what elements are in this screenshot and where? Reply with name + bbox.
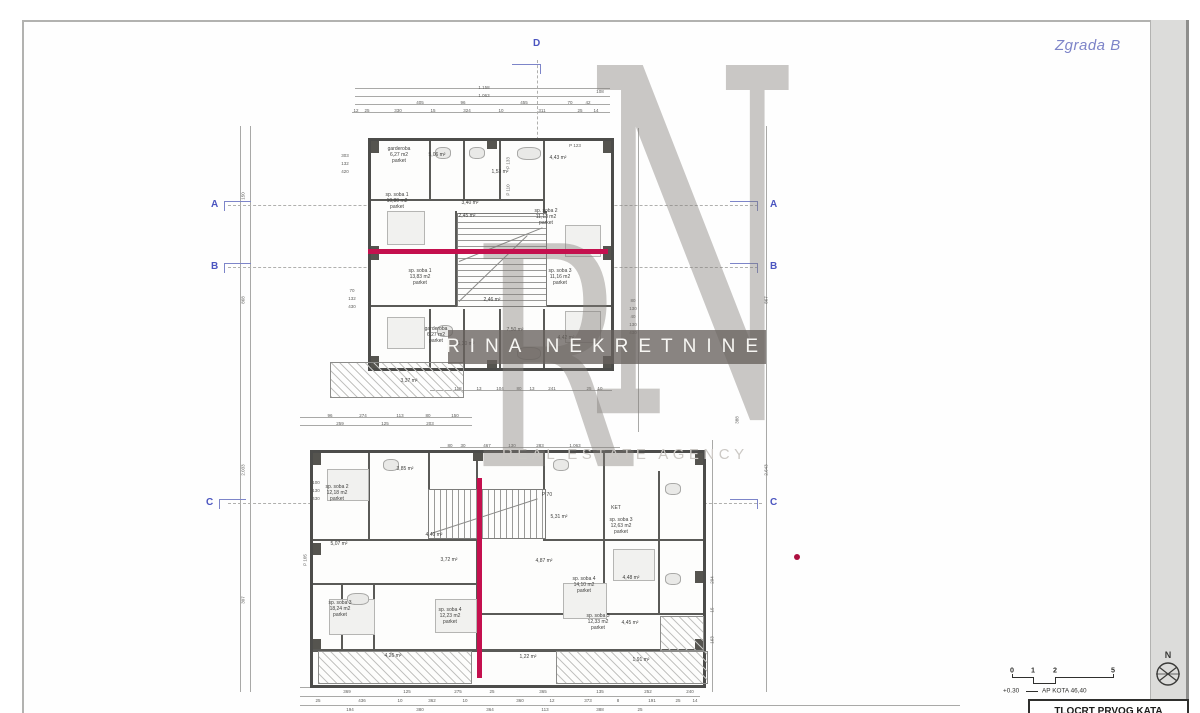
wc-fixture xyxy=(665,573,681,585)
terrace-hatch xyxy=(330,362,464,398)
room-label: 4,26 m² xyxy=(385,653,402,659)
dimension-label: 430 xyxy=(312,496,320,501)
title-block: TLOCRT PRVOG KATA xyxy=(1028,699,1189,713)
scale-bar xyxy=(1055,677,1114,678)
dimension-label: 10 xyxy=(462,698,467,703)
section-marker-letter: B xyxy=(770,261,777,272)
scale-tick-label: 0 xyxy=(1010,666,1014,674)
wall-segment xyxy=(313,583,478,585)
dimension-label: 118 xyxy=(454,386,461,391)
scale-bar-tick xyxy=(1055,677,1056,684)
watermark-banner-text: RINA NEKRETNINE xyxy=(446,336,768,358)
bed xyxy=(387,317,425,349)
dim-chain-line xyxy=(300,417,472,418)
dimension-label: 113 xyxy=(396,413,403,418)
wall-pier xyxy=(473,453,483,461)
room-label: 5,31 m² xyxy=(551,514,568,520)
elevation-note: +0.30 xyxy=(1003,687,1019,694)
dimension-label: 1.158 xyxy=(478,85,489,90)
dimension-label: P 110 xyxy=(506,184,511,195)
watermark-subtitle: REAL ESTATE AGENCY xyxy=(502,446,749,463)
dimension-label: 259 xyxy=(336,421,344,426)
room-label: 3,37 m² xyxy=(401,378,418,384)
dimension-label: 132 xyxy=(348,296,356,301)
section-marker-bracket xyxy=(224,263,225,273)
wall-pier xyxy=(313,543,321,555)
room-label: garderoba 6,27 m2 parket xyxy=(425,326,448,344)
dimension-label: 274 xyxy=(359,413,367,418)
dimension-label: 104 xyxy=(496,386,504,391)
room-label: 2,45 m² xyxy=(459,213,476,219)
section-marker-bracket xyxy=(224,263,251,264)
dimension-label: 150 xyxy=(451,413,459,418)
dimension-label: 10 xyxy=(597,386,602,391)
room-label: 1,91 m² xyxy=(633,657,650,663)
dimension-label: 467 xyxy=(483,443,491,448)
sheet-right-edge xyxy=(1186,20,1189,713)
dimension-label: 388 xyxy=(735,416,740,424)
room-label: sp. soba 3 12,33 m2 parket xyxy=(586,613,609,631)
dimension-label: 10 xyxy=(397,698,402,703)
dimension-label: 252 xyxy=(644,689,652,694)
dimension-label: 436 xyxy=(358,698,366,703)
dimension-label: 303 xyxy=(341,153,349,158)
dimension-label: 25 xyxy=(675,698,680,703)
dimension-label: 132 xyxy=(341,161,349,166)
dimension-label: 369 xyxy=(343,689,351,694)
dimension-label: 364 xyxy=(486,707,494,712)
dimension-label: 15 xyxy=(430,108,435,113)
scale-tick-label: 2 xyxy=(1053,666,1057,674)
dimension-label: 430 xyxy=(348,304,356,309)
dimension-label: 150 xyxy=(241,192,246,200)
floor-plan-page: Zgrada B xyxy=(0,0,1200,713)
scale-bar xyxy=(1033,683,1056,684)
dim-chain-line xyxy=(300,696,700,697)
dimension-label: 868 xyxy=(241,296,246,304)
dimension-label: 2.033 xyxy=(241,464,246,475)
section-marker-bracket xyxy=(540,64,541,74)
wall-segment xyxy=(658,471,660,615)
dimension-label: 362 xyxy=(428,698,436,703)
section-marker-letter: C xyxy=(206,497,213,508)
dimension-label: 13 xyxy=(476,386,481,391)
dimension-label: 80 xyxy=(425,413,430,418)
wc-fixture xyxy=(469,147,485,159)
section-line-d xyxy=(537,60,538,145)
dim-chain-line xyxy=(352,112,610,113)
section-marker-bracket xyxy=(219,499,220,509)
wall-segment xyxy=(463,141,465,199)
dimension-label: 130 xyxy=(312,488,320,493)
room-label: 5,07 m² xyxy=(331,541,348,547)
dimension-label: 307 xyxy=(241,596,246,604)
dimension-label: 40 xyxy=(630,314,635,319)
room-label: 4,87 m² xyxy=(536,558,553,564)
dimension-label: 100 xyxy=(312,480,320,485)
dim-chain-line xyxy=(766,126,767,692)
room-label: sp. soba 3 18,24 m2 parket xyxy=(328,600,351,618)
scale-bar-tick xyxy=(1012,674,1013,678)
wall-segment xyxy=(429,141,431,199)
dimension-label: 241 xyxy=(548,386,556,391)
dimension-label: 25 xyxy=(364,108,369,113)
dimension-label: 294 xyxy=(710,576,715,584)
section-marker-bracket xyxy=(757,499,758,509)
dimension-label: P 105 xyxy=(303,554,308,566)
dimension-label: 10 xyxy=(498,108,503,113)
dimension-label: 275 xyxy=(454,689,462,694)
dimension-label: 12 xyxy=(353,108,358,113)
room-label: sp. soba 2 12,18 m2 parket xyxy=(325,484,348,502)
room-label: 4,40 m² xyxy=(426,532,443,538)
dimension-label: 14 xyxy=(593,108,598,113)
title-block-text: TLOCRT PRVOG KATA xyxy=(1054,706,1162,713)
dimension-label: 70 xyxy=(567,100,572,105)
room-label: sp. soba 4 12,23 m2 parket xyxy=(438,607,461,625)
room-label: KET xyxy=(611,505,621,511)
section-marker-bracket xyxy=(757,263,758,273)
room-label: 1,53 m² xyxy=(492,169,509,175)
room-label: 3,40 m² xyxy=(462,200,479,206)
wall-pier xyxy=(695,571,703,583)
wall-pier xyxy=(313,453,321,465)
dimension-label: 30 xyxy=(460,443,465,448)
dimension-label: 113 xyxy=(541,707,548,712)
scale-bar-tick xyxy=(1113,674,1114,678)
section-marker-bracket xyxy=(757,201,758,211)
section-marker-letter: D xyxy=(533,38,540,49)
dimension-label: 405 xyxy=(416,100,424,105)
room-label: sp. soba 1 10,80 m2 parket xyxy=(385,192,408,210)
section-marker-bracket xyxy=(730,263,757,264)
room-label: 5,06 m² xyxy=(429,152,446,158)
dimension-label: 25 xyxy=(489,689,494,694)
dimension-label: 867 xyxy=(764,296,769,304)
room-label: 3,85 m² xyxy=(397,466,414,472)
room-label: 2,46 m² xyxy=(484,297,501,303)
dimension-label: 130 xyxy=(629,322,637,327)
dim-chain-line xyxy=(250,126,251,692)
scale-tick-label: 1 xyxy=(1031,666,1035,674)
dimension-label: 1.063 xyxy=(478,93,489,98)
magenta-cut-line-horizontal xyxy=(368,249,608,254)
section-marker-bracket xyxy=(219,499,246,500)
dimension-label: 373 xyxy=(584,698,592,703)
building-label: Zgrada B xyxy=(1055,37,1121,54)
dimension-label: 25 xyxy=(315,698,320,703)
bed xyxy=(387,211,425,245)
dimension-label: 330 xyxy=(394,108,402,113)
compass-icon xyxy=(1154,660,1182,688)
wc-fixture xyxy=(665,483,681,495)
wall-segment xyxy=(545,305,611,307)
dimension-label: 2.643 xyxy=(764,464,769,475)
terrace-hatch xyxy=(556,651,708,684)
room-label: P 70 xyxy=(542,492,552,498)
room-label: sp. soba 3 11,16 m2 parket xyxy=(548,268,571,286)
dimension-label: 324 xyxy=(463,108,471,113)
section-marker-letter: A xyxy=(770,199,777,210)
scale-bar xyxy=(1012,677,1034,678)
dimension-label: 203 xyxy=(426,421,434,426)
dim-chain-line xyxy=(712,440,713,692)
dimension-label: 15 xyxy=(710,607,715,612)
room-label: 1,22 m² xyxy=(520,654,537,660)
dimension-label: 388 xyxy=(596,707,604,712)
scale-bar-tick xyxy=(1033,677,1034,684)
dimension-label: 8 xyxy=(617,698,620,703)
scale-tick-label: 5 xyxy=(1111,666,1115,674)
room-label: sp. soba 2 11,13 m2 parket xyxy=(534,208,557,226)
lower-floor-plan xyxy=(310,450,706,688)
wall-segment xyxy=(371,305,457,307)
dimension-label: 25 xyxy=(586,386,591,391)
wall-segment xyxy=(543,539,703,541)
wall-pier xyxy=(313,639,321,649)
dimension-label: 455 xyxy=(520,100,528,105)
room-label: 4,45 m² xyxy=(622,620,639,626)
wall-pier xyxy=(487,141,497,149)
room-label: sp. soba 1 13,83 m2 parket xyxy=(408,268,431,286)
dimension-label: 14 xyxy=(692,698,697,703)
dimension-label: 25 xyxy=(577,108,582,113)
dimension-label: 125 xyxy=(381,421,389,426)
room-label: garderoba 6,27 m2 parket xyxy=(388,146,411,164)
dimension-label: 163 xyxy=(710,636,715,644)
sheet-margin-strip xyxy=(1150,20,1187,713)
magenta-cut-line-vertical xyxy=(477,478,482,678)
section-marker-bracket xyxy=(224,201,225,211)
dimension-label: 70 xyxy=(349,288,354,293)
dimension-label: P 133 xyxy=(506,157,511,169)
dimension-label: 311 xyxy=(538,108,545,113)
dimension-label: 135 xyxy=(596,689,604,694)
dim-chain-line xyxy=(240,126,241,692)
dimension-label: 194 xyxy=(346,707,354,712)
magenta-dot xyxy=(794,554,800,560)
dimension-label: 42 xyxy=(585,100,590,105)
north-label: N xyxy=(1150,650,1186,660)
dimension-label: 96 xyxy=(460,100,465,105)
dimension-label: 80 xyxy=(516,386,521,391)
section-marker-letter: B xyxy=(211,261,218,272)
section-marker-bracket xyxy=(730,499,757,500)
dimension-label: 420 xyxy=(341,169,349,174)
section-marker-letter: C xyxy=(770,497,777,508)
dimension-label: 191 xyxy=(648,698,656,703)
note-dash xyxy=(1026,691,1038,692)
room-label: 4,48 m² xyxy=(623,575,640,581)
dimension-label: 130 xyxy=(629,306,637,311)
dimension-label: 13 xyxy=(529,386,534,391)
room-label: sp. soba 4 14,10 m2 parket xyxy=(572,576,595,594)
room-label: sp. soba 3 12,63 m2 parket xyxy=(609,517,632,535)
watermark-banner: RINA NEKRETNINE xyxy=(448,330,766,364)
terrace-hatch xyxy=(660,616,704,651)
dimension-label: 80 xyxy=(630,298,635,303)
dimension-label: 125 xyxy=(403,689,411,694)
bath-fixture xyxy=(517,147,541,160)
dim-chain-line xyxy=(300,705,960,706)
room-label: 3,72 m² xyxy=(441,557,458,563)
section-marker-bracket xyxy=(512,64,540,65)
room-label: 4,43 m² xyxy=(550,155,567,161)
dimension-label: 380 xyxy=(416,707,424,712)
section-marker-bracket xyxy=(730,201,757,202)
kota-note: AP KOTA 46,40 xyxy=(1042,687,1087,694)
north-compass: N xyxy=(1150,650,1186,700)
dimension-label: 360 xyxy=(516,698,524,703)
wall-pier xyxy=(603,141,611,153)
dimension-label: P 123 xyxy=(569,143,581,148)
wall-pier xyxy=(371,141,379,153)
section-marker-letter: A xyxy=(211,199,218,210)
dim-chain-line xyxy=(638,128,639,432)
dimension-label: 365 xyxy=(539,689,547,694)
dimension-label: 25 xyxy=(637,707,642,712)
dimension-label: 108 xyxy=(596,89,604,94)
dimension-label: 12 xyxy=(549,698,554,703)
dimension-label: 96 xyxy=(327,413,332,418)
section-marker-bracket xyxy=(224,201,251,202)
dimension-label: 240 xyxy=(686,689,694,694)
dimension-label: 80 xyxy=(447,443,452,448)
